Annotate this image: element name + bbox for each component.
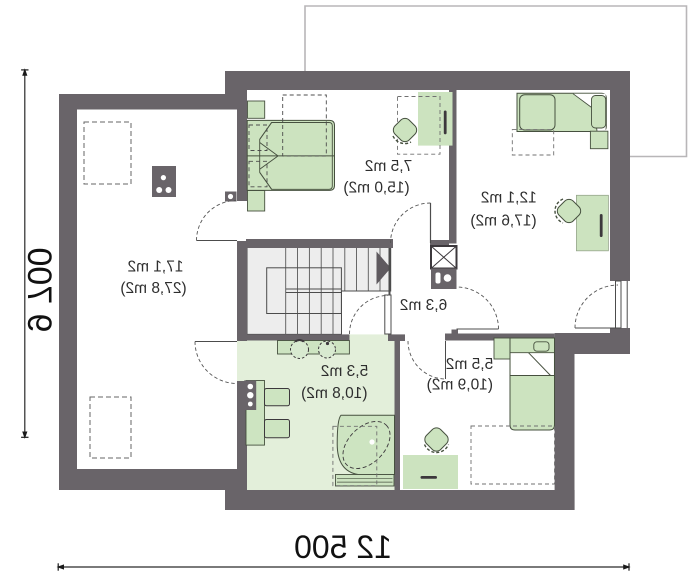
svg-text:(10,8 m2): (10,8 m2) [301,385,367,402]
svg-text:12,1 m2: 12,1 m2 [481,190,537,207]
svg-text:5,5 m2: 5,5 m2 [446,356,493,373]
svg-text:(17,6 m2): (17,6 m2) [470,213,536,230]
svg-text:(10,9 m2): (10,9 m2) [427,377,493,394]
svg-text:17,1 m2: 17,1 m2 [127,259,183,276]
svg-text:9 700: 9 700 [20,247,58,332]
svg-text:12 500: 12 500 [294,529,392,565]
svg-text:5,3 m2: 5,3 m2 [321,363,368,380]
svg-text:7,5 m2: 7,5 m2 [365,158,412,175]
svg-text:6,3 m2: 6,3 m2 [400,297,447,314]
svg-text:(27,8 m2): (27,8 m2) [120,280,186,297]
svg-text:(15,0 m2): (15,0 m2) [343,179,409,196]
